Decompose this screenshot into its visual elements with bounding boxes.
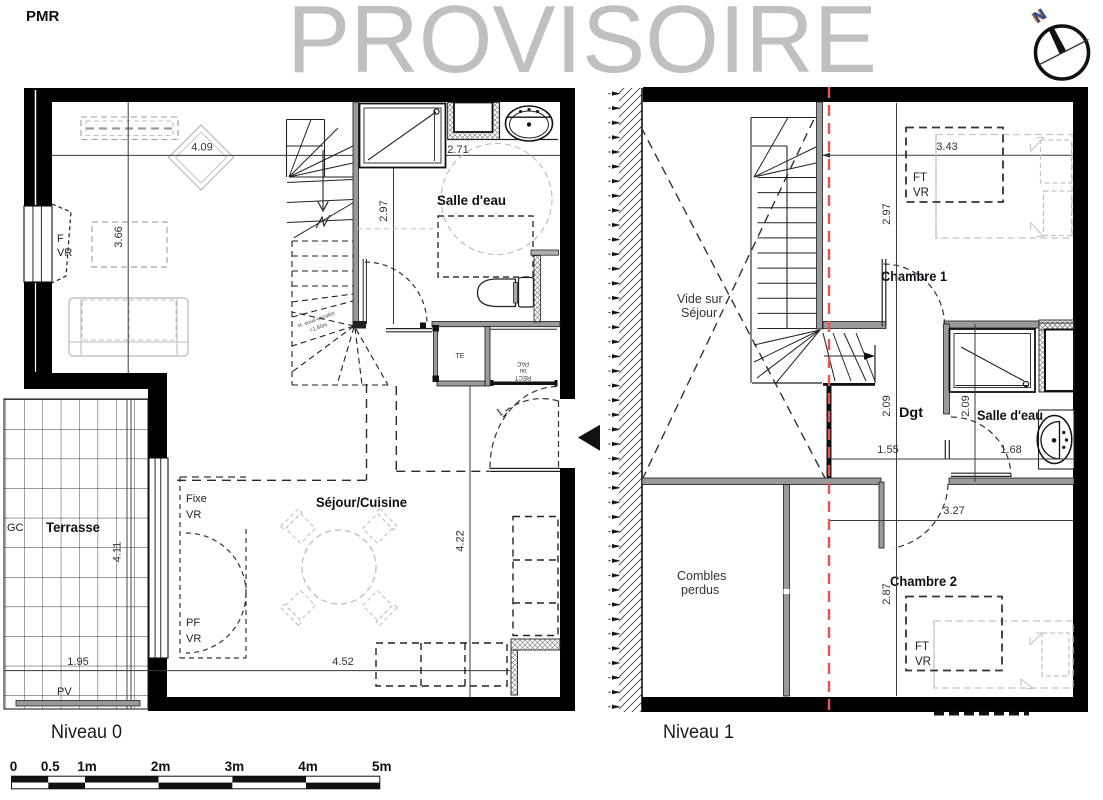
svg-text:5m: 5m [372,759,392,774]
svg-text:2.97: 2.97 [881,203,893,224]
svg-text:1.55: 1.55 [877,444,898,456]
svg-text:PMR: PMR [26,8,60,25]
svg-text:Fixe: Fixe [186,493,207,505]
svg-text:PAC: PAC [516,360,529,366]
svg-text:3.43: 3.43 [936,141,957,153]
svg-text:FT: FT [913,172,927,184]
svg-text:2.97: 2.97 [378,200,390,221]
svg-text:2.71: 2.71 [447,144,468,156]
svg-text:1.95: 1.95 [67,656,88,668]
svg-text:Séjour/Cuisine: Séjour/Cuisine [316,494,407,510]
svg-text:GC: GC [7,522,24,534]
svg-text:0.5: 0.5 [41,759,60,774]
svg-text:2.09: 2.09 [960,395,972,416]
svg-text:Séjour: Séjour [681,306,717,320]
svg-text:3.27: 3.27 [943,505,964,517]
svg-text:1m: 1m [77,759,97,774]
svg-text:2m: 2m [151,759,171,774]
svg-text:4.22: 4.22 [455,530,467,551]
svg-text:2.87: 2.87 [881,583,893,604]
svg-text:Dgt: Dgt [899,404,923,420]
svg-text:RECT: RECT [515,374,532,380]
svg-text:FT: FT [915,641,929,653]
svg-text:4.11: 4.11 [112,542,124,563]
svg-text:VR: VR [57,247,72,259]
svg-text:PROVISOIRE: PROVISOIRE [287,0,877,93]
svg-text:VR: VR [186,633,201,645]
svg-text:F: F [57,233,64,245]
svg-text:Terrasse: Terrasse [46,519,100,535]
svg-text:TE: TE [456,353,465,360]
svg-text:1.68: 1.68 [1000,444,1021,456]
svg-text:VR: VR [186,509,201,521]
svg-text:4.09: 4.09 [191,142,212,154]
svg-text:Combles: Combles [677,569,726,583]
svg-text:VR: VR [915,656,931,668]
svg-text:3.66: 3.66 [113,226,125,247]
svg-text:ou: ou [520,367,527,373]
svg-text:PF: PF [186,617,200,629]
svg-text:perdus: perdus [681,583,719,597]
svg-text:Niveau 1: Niveau 1 [663,721,734,743]
svg-text:0: 0 [10,759,18,774]
svg-text:Niveau 0: Niveau 0 [51,721,122,743]
svg-text:Chambre 1: Chambre 1 [881,268,947,284]
svg-text:4m: 4m [298,759,318,774]
svg-text:Salle d'eau: Salle d'eau [437,192,506,208]
svg-text:Salle d'eau: Salle d'eau [977,407,1043,423]
svg-text:Chambre 2: Chambre 2 [890,573,957,589]
svg-text:Vide sur: Vide sur [677,292,723,306]
svg-text:2.09: 2.09 [881,395,893,416]
svg-text:PV: PV [57,686,72,698]
svg-text:VR: VR [913,187,929,199]
svg-text:3m: 3m [225,759,245,774]
svg-text:4.52: 4.52 [332,656,353,668]
